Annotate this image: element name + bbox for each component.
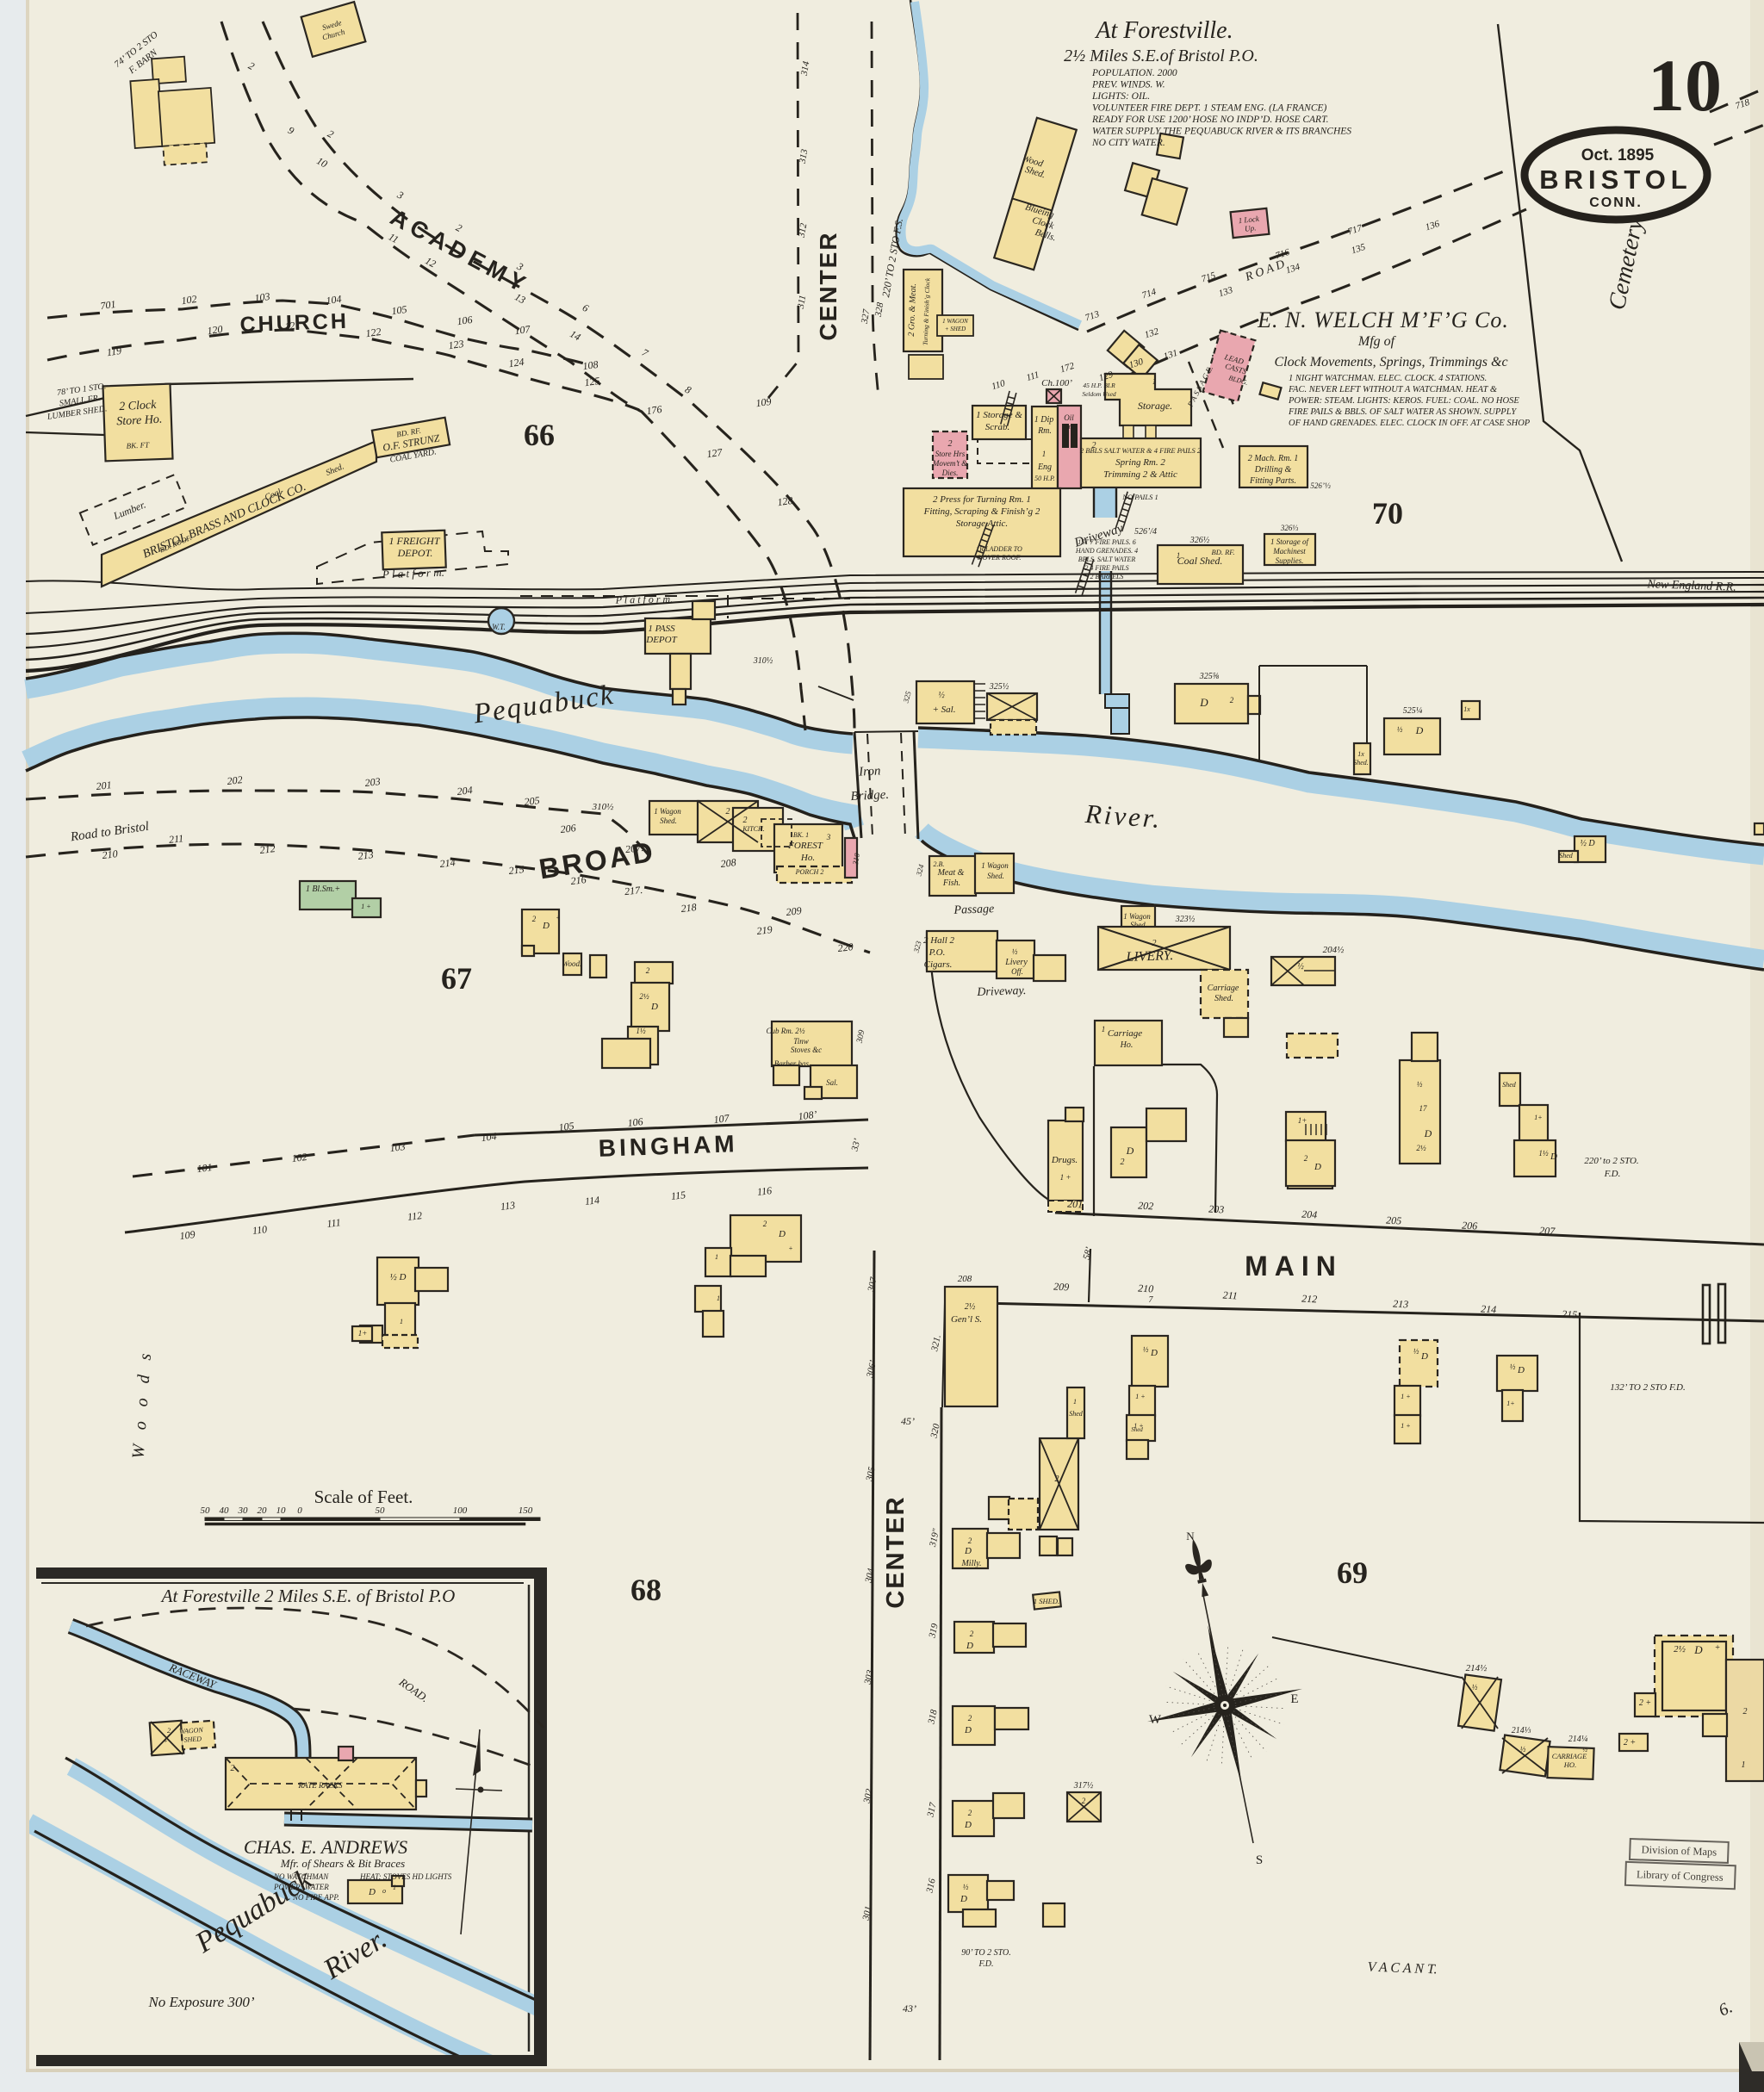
- svg-text:120: 120: [207, 323, 224, 337]
- svg-text:½: ½: [963, 1883, 969, 1891]
- svg-text:1+: 1+: [1506, 1400, 1514, 1407]
- svg-text:2: 2: [646, 966, 650, 975]
- svg-text:1½: 1½: [1538, 1149, 1549, 1158]
- svg-text:Iron: Iron: [858, 764, 881, 779]
- svg-text:P l a t f o r m.: P l a t f o r m.: [382, 566, 444, 581]
- svg-text:D: D: [1693, 1643, 1703, 1656]
- svg-text:1 +: 1 +: [1060, 1173, 1071, 1182]
- svg-text:121: 121: [284, 319, 301, 332]
- svg-text:214: 214: [439, 856, 456, 870]
- svg-text:OF HAND GRENADES. ELEC. CLO: OF HAND GRENADES. ELEC. CLOCK IN OFF. AT…: [1289, 419, 1531, 428]
- svg-text:POPULATION. 2000: POPULATION. 2000: [1091, 68, 1177, 78]
- svg-text:45’: 45’: [901, 1415, 915, 1427]
- svg-text:208: 208: [958, 1274, 972, 1284]
- svg-text:107: 107: [713, 1112, 731, 1126]
- svg-text:210: 210: [1138, 1282, 1154, 1295]
- svg-text:317½: 317½: [1073, 1781, 1094, 1791]
- svg-text:S: S: [1256, 1853, 1263, 1867]
- svg-text:1 +: 1 +: [361, 903, 370, 910]
- svg-text:CENTER: CENTER: [815, 231, 842, 340]
- svg-text:D: D: [964, 1820, 972, 1830]
- svg-text:67: 67: [441, 961, 472, 996]
- svg-text:+ SHED: + SHED: [945, 326, 966, 332]
- svg-text:1+: 1+: [1534, 1114, 1542, 1121]
- svg-text:Oil: Oil: [1064, 413, 1074, 422]
- svg-text:214½: 214½: [1466, 1663, 1488, 1673]
- svg-text:1: 1: [393, 1884, 396, 1891]
- svg-text:2 Gro. & Meat.: 2 Gro. & Meat.: [907, 283, 918, 337]
- svg-text:WATER SUPPLY THE PEQUABUC: WATER SUPPLY THE PEQUABUCK RIVER & ITS B…: [1092, 127, 1351, 137]
- svg-text:½ D: ½ D: [390, 1272, 407, 1282]
- svg-text:1 PASS: 1 PASS: [648, 624, 675, 634]
- svg-text:2 BBLS SALT WATER & 4 FIRE PAI: 2 BBLS SALT WATER & 4 FIRE PAILS 2: [1080, 446, 1202, 455]
- svg-text:2: 2: [1230, 696, 1234, 705]
- svg-text:219: 219: [756, 923, 773, 937]
- svg-text:0: 0: [297, 1505, 302, 1516]
- svg-text:2: 2: [970, 1630, 974, 1638]
- svg-text:114: 114: [584, 1194, 600, 1207]
- svg-text:½: ½: [1297, 962, 1304, 972]
- svg-text:202: 202: [227, 773, 243, 787]
- svg-text:1 Storage &: 1 Storage &: [976, 410, 1022, 420]
- svg-text:220’ to 2 STO.: 220’ to 2 STO.: [1584, 1156, 1638, 1166]
- svg-text:2: 2: [968, 1714, 972, 1723]
- svg-text:1: 1: [1152, 377, 1157, 386]
- svg-text:2: 2: [1121, 1158, 1125, 1167]
- svg-text:108: 108: [582, 358, 599, 372]
- svg-text:213: 213: [1393, 1298, 1409, 1311]
- svg-text:Shed.: Shed.: [660, 816, 677, 825]
- svg-text:W: W: [1149, 1713, 1162, 1727]
- svg-text:201: 201: [96, 779, 112, 792]
- svg-text:Coal Shed.: Coal Shed.: [1177, 555, 1223, 567]
- svg-text:Off.: Off.: [1011, 967, 1023, 976]
- svg-text:Driveway.: Driveway.: [976, 984, 1027, 999]
- svg-text:1 NIGHT WATCHMAN. ELEC.: 1 NIGHT WATCHMAN. ELEC. CLOCK. 4 STATION…: [1289, 374, 1487, 383]
- svg-text:1: 1: [1073, 1398, 1077, 1406]
- svg-text:D: D: [1415, 724, 1424, 736]
- svg-text:1 Bl.Sm.+: 1 Bl.Sm.+: [306, 885, 340, 894]
- svg-text:128: 128: [777, 494, 794, 508]
- svg-text:2 Clock: 2 Clock: [119, 399, 158, 413]
- svg-text:½: ½: [1143, 1345, 1149, 1354]
- svg-text:108’: 108’: [798, 1108, 818, 1123]
- svg-text:+ Sal.: + Sal.: [933, 705, 956, 715]
- svg-text:P l a t f o r m.: P l a t f o r m.: [615, 593, 674, 605]
- svg-text:2 Mach. Rm. 1: 2 Mach. Rm. 1: [1248, 454, 1299, 463]
- svg-text:127: 127: [706, 446, 724, 461]
- svg-text:103: 103: [254, 290, 271, 304]
- svg-text:2: 2: [1743, 1707, 1748, 1716]
- svg-text:2 Press for Turning Rm. 1: 2 Press for Turning Rm. 1: [933, 494, 1031, 505]
- svg-text:Store Ho.: Store Ho.: [116, 413, 163, 429]
- svg-text:+: +: [556, 914, 560, 922]
- svg-text:E: E: [1290, 1692, 1298, 1706]
- svg-text:116: 116: [756, 1184, 773, 1198]
- svg-text:V A C A N: V A C A N T.: [1367, 1960, 1437, 1977]
- svg-text:2: 2: [1304, 1154, 1308, 1163]
- svg-text:2: 2: [948, 439, 953, 449]
- svg-text:103: 103: [389, 1140, 407, 1154]
- svg-text:Sal.: Sal.: [826, 1078, 838, 1087]
- svg-text:105: 105: [391, 303, 408, 317]
- svg-text:2.B.: 2.B.: [934, 860, 945, 868]
- svg-text:Scrab.: Scrab.: [985, 422, 1009, 432]
- svg-text:213: 213: [357, 848, 374, 862]
- svg-text:Seldom Used: Seldom Used: [1082, 390, 1116, 398]
- svg-text:70: 70: [1372, 496, 1403, 531]
- svg-text:LIVERY.: LIVERY.: [1125, 948, 1173, 965]
- svg-text:NO CITY WATER.: NO CITY WATER.: [1091, 138, 1165, 148]
- svg-text:FIRE PAILS & BBLS. OF SALT WA: FIRE PAILS & BBLS. OF SALT WATER AS SHOW…: [1288, 407, 1517, 417]
- svg-text:325⅝: 325⅝: [1199, 672, 1220, 681]
- svg-text:NO PAILS 1: NO PAILS 1: [1121, 493, 1158, 501]
- svg-text:At Forestville.: At Forestville.: [1094, 17, 1233, 44]
- svg-text:201: 201: [1067, 1198, 1084, 1211]
- svg-text:107: 107: [514, 323, 532, 338]
- svg-text:Cigars.: Cigars.: [924, 959, 953, 970]
- svg-text:D: D: [964, 1546, 972, 1556]
- svg-text:D: D: [1314, 1162, 1321, 1172]
- svg-text:526’⅓: 526’⅓: [1310, 481, 1330, 490]
- svg-text:1 WAGON: 1 WAGON: [942, 318, 968, 325]
- svg-text:+: +: [788, 1245, 792, 1252]
- svg-text:1R LADDER TO: 1R LADDER TO: [976, 545, 1022, 553]
- svg-text:No Exposure 300’: No Exposure 300’: [147, 1994, 254, 2010]
- svg-text:1 +: 1 +: [1401, 1393, 1410, 1400]
- svg-text:43’: 43’: [903, 2002, 916, 2014]
- svg-text:105: 105: [558, 1120, 575, 1133]
- svg-text:Trimming 2 & Attic: Trimming 2 & Attic: [1103, 469, 1177, 480]
- svg-text:203: 203: [1208, 1203, 1225, 1216]
- svg-text:KITCH.: KITCH.: [742, 825, 765, 833]
- svg-text:F.D.: F.D.: [978, 1959, 993, 1969]
- svg-text:RATE RACKS: RATE RACKS: [298, 1781, 343, 1790]
- svg-text:30: 30: [238, 1505, 249, 1516]
- svg-text:D: D: [1550, 1152, 1557, 1162]
- svg-text:Ho.: Ho.: [1120, 1040, 1134, 1050]
- svg-text:VOLUNTEER FIRE DEPT.: VOLUNTEER FIRE DEPT. 1 STEAM ENG. (LA FR…: [1092, 103, 1327, 114]
- svg-text:208: 208: [720, 856, 736, 870]
- svg-text:Rm.: Rm.: [1064, 423, 1076, 431]
- svg-text:2½: 2½: [1674, 1644, 1686, 1654]
- svg-text:8 OVER ROOF.: 8 OVER ROOF.: [978, 554, 1022, 562]
- svg-text:BK. FT: BK. FT: [126, 440, 150, 450]
- svg-text:½: ½: [938, 691, 945, 700]
- svg-text:132’ TO 2 STO F.D.: 132’ TO 2 STO F.D.: [1610, 1382, 1685, 1393]
- svg-text:2½: 2½: [1416, 1144, 1426, 1152]
- svg-text:BINGHAM: BINGHAM: [598, 1130, 738, 1162]
- svg-text:½: ½: [1413, 1347, 1419, 1356]
- svg-text:½: ½: [1012, 947, 1018, 956]
- svg-text:323½: 323½: [1175, 915, 1196, 924]
- svg-text:2: 2: [763, 1220, 767, 1228]
- svg-text:1 +: 1 +: [1135, 1393, 1145, 1400]
- svg-text:210: 210: [102, 847, 118, 861]
- svg-text:2: 2: [726, 807, 730, 816]
- svg-text:104: 104: [481, 1130, 498, 1144]
- svg-text:2: 2: [968, 1809, 972, 1817]
- svg-text:203: 203: [364, 775, 381, 789]
- svg-text:D: D: [964, 1725, 972, 1735]
- svg-text:N: N: [1186, 1530, 1195, 1543]
- svg-text:2: 2: [1152, 939, 1157, 948]
- svg-text:F.D.: F.D.: [1604, 1169, 1621, 1179]
- svg-text:50: 50: [376, 1505, 386, 1516]
- svg-text:325½: 325½: [989, 682, 1009, 692]
- svg-text:D: D: [960, 1894, 967, 1904]
- svg-text:220: 220: [837, 940, 854, 954]
- svg-text:Meat &: Meat &: [937, 868, 965, 878]
- svg-text:DEPOT.: DEPOT.: [397, 547, 433, 559]
- svg-text:Storage.: Storage.: [1138, 400, 1172, 412]
- svg-text:Bridge.: Bridge.: [850, 788, 889, 804]
- svg-text:2½: 2½: [965, 1302, 976, 1312]
- svg-text:FAC. NEVER LEFT WITHOUT A WATC: FAC. NEVER LEFT WITHOUT A WATCHMAN. HEAT…: [1288, 385, 1498, 394]
- svg-text:124: 124: [508, 356, 525, 369]
- svg-text:326⅓: 326⅓: [1280, 524, 1299, 532]
- svg-text:2: 2: [1055, 1474, 1059, 1484]
- svg-text:POWER: STEAM. LIGHTS: KERO: POWER: STEAM. LIGHTS: KEROS. FUEL: COAL.…: [1288, 396, 1519, 406]
- svg-text:212: 212: [259, 842, 276, 856]
- svg-text:110: 110: [252, 1223, 268, 1237]
- svg-text:Shed.: Shed.: [1353, 759, 1369, 767]
- svg-text:W.T.: W.T.: [492, 623, 506, 631]
- svg-text:2: 2: [968, 1536, 972, 1545]
- svg-text:1 Wagon: 1 Wagon: [654, 807, 681, 816]
- svg-text:1+: 1+: [1298, 1116, 1307, 1125]
- svg-text:D: D: [368, 1887, 376, 1897]
- svg-text:Eng: Eng: [1037, 462, 1052, 472]
- svg-text:Tinw: Tinw: [793, 1037, 809, 1046]
- svg-text:1 Wagon: 1 Wagon: [981, 861, 1009, 870]
- svg-text:216: 216: [570, 873, 587, 887]
- svg-text:D: D: [1424, 1127, 1432, 1139]
- svg-text:+: +: [163, 1737, 167, 1745]
- svg-text:1x: 1x: [1357, 750, 1364, 758]
- svg-text:69: 69: [1337, 1555, 1368, 1590]
- svg-text:Movem’t &: Movem’t &: [932, 459, 967, 468]
- svg-text:D: D: [542, 921, 550, 931]
- svg-text:3: 3: [826, 833, 831, 841]
- svg-text:½ D: ½ D: [1580, 839, 1595, 848]
- svg-text:PORCH 2: PORCH 2: [795, 868, 824, 876]
- svg-text:218: 218: [680, 901, 697, 915]
- svg-text:2½ Miles S.E.of Bristol P.O.: 2½ Miles S.E.of Bristol P.O.: [1064, 47, 1258, 65]
- svg-text:CHAS. E. ANDREWS: CHAS. E. ANDREWS: [244, 1836, 407, 1858]
- svg-text:D: D: [1199, 696, 1208, 709]
- svg-text:½: ½: [1510, 1363, 1516, 1371]
- svg-text:Storage Attic.: Storage Attic.: [956, 518, 1008, 529]
- svg-text:101: 101: [196, 1161, 214, 1175]
- svg-text:207.: 207.: [624, 841, 643, 855]
- svg-text:206: 206: [1462, 1220, 1478, 1232]
- svg-text:2 BARRELS: 2 BARRELS: [1090, 573, 1124, 580]
- svg-text:1 FREIGHT: 1 FREIGHT: [389, 535, 441, 547]
- svg-text:Ho.: Ho.: [800, 853, 815, 863]
- svg-text:17: 17: [1419, 1104, 1428, 1113]
- svg-text:217.: 217.: [624, 884, 643, 897]
- svg-text:Oct. 1895: Oct. 1895: [1581, 146, 1655, 165]
- svg-text:68: 68: [630, 1573, 661, 1607]
- svg-text:525¼: 525¼: [1403, 706, 1423, 716]
- svg-text:109: 109: [179, 1228, 196, 1242]
- svg-text:106: 106: [457, 313, 474, 327]
- svg-text:1 SHED.: 1 SHED.: [1034, 1597, 1059, 1605]
- svg-text:214: 214: [1481, 1303, 1497, 1316]
- svg-text:FOREST: FOREST: [787, 841, 823, 851]
- svg-text:River.: River.: [1084, 798, 1164, 834]
- svg-text:Barber bas.: Barber bas.: [774, 1059, 811, 1068]
- svg-text:202: 202: [1138, 1200, 1154, 1213]
- svg-text:214¼: 214¼: [1568, 1735, 1588, 1744]
- svg-text:206: 206: [560, 822, 576, 835]
- svg-text:HAND GRENADES. 4: HAND GRENADES. 4: [1075, 547, 1138, 555]
- svg-text:1: 1: [717, 1294, 720, 1302]
- svg-text:112: 112: [407, 1209, 423, 1223]
- svg-text:MAIN: MAIN: [1245, 1251, 1343, 1282]
- svg-text:Fitting Parts.: Fitting Parts.: [1249, 476, 1296, 486]
- svg-text:1 Dip: 1 Dip: [1034, 415, 1054, 425]
- svg-text:1: 1: [1742, 1760, 1746, 1770]
- svg-text:D: D: [650, 1002, 658, 1012]
- svg-text:Carriage: Carriage: [1108, 1028, 1142, 1039]
- svg-text:204: 204: [1301, 1208, 1318, 1221]
- svg-text:D: D: [778, 1229, 786, 1239]
- svg-text:HEAT: STOVES HD LIGHTS: HEAT: STOVES HD LIGHTS: [359, 1872, 452, 1881]
- svg-text:115: 115: [670, 1189, 686, 1202]
- svg-text:BD. RF.: BD. RF.: [1212, 548, 1235, 556]
- svg-text:½: ½: [1397, 725, 1403, 734]
- svg-text:1+: 1+: [358, 1329, 368, 1338]
- svg-text:E. N. WELCH M’F’G Co.: E. N. WELCH M’F’G Co.: [1257, 307, 1509, 332]
- svg-text:209: 209: [1053, 1281, 1070, 1294]
- svg-text:2½: 2½: [639, 992, 649, 1001]
- svg-text:Spring Rm. 2: Spring Rm. 2: [1115, 457, 1165, 468]
- svg-text:310½: 310½: [592, 802, 614, 812]
- svg-text:D: D: [1517, 1365, 1525, 1375]
- svg-text:207: 207: [1539, 1225, 1556, 1238]
- svg-text:Shed: Shed: [1069, 1410, 1084, 1418]
- svg-text:Carriage: Carriage: [1208, 984, 1239, 993]
- svg-text:At Forestville 2 Miles S.E.: At Forestville 2 Miles S.E. of Bristol P…: [160, 1586, 456, 1606]
- svg-text:Rm.: Rm.: [1037, 426, 1052, 436]
- svg-text:40: 40: [220, 1505, 230, 1516]
- svg-text:1: 1: [1177, 551, 1181, 560]
- svg-text:SHED: SHED: [183, 1735, 202, 1743]
- svg-text:2 +: 2 +: [1624, 1738, 1636, 1747]
- svg-text:+: +: [1715, 1643, 1721, 1653]
- svg-text:CONN.: CONN.: [1589, 196, 1643, 210]
- svg-text:20: 20: [258, 1505, 268, 1516]
- svg-text:Shed.: Shed.: [987, 872, 1004, 880]
- svg-text:209: 209: [786, 904, 802, 918]
- svg-text:2: 2: [167, 1727, 171, 1735]
- svg-text:Gen’l S.: Gen’l S.: [951, 1314, 982, 1325]
- svg-text:50: 50: [201, 1505, 211, 1516]
- svg-text:2 +: 2 +: [1639, 1698, 1651, 1708]
- svg-text:212: 212: [1301, 1293, 1318, 1306]
- svg-text:125: 125: [584, 375, 601, 388]
- svg-text:½: ½: [1582, 1746, 1587, 1754]
- svg-text:D: D: [1420, 1351, 1428, 1362]
- svg-text:211: 211: [1222, 1289, 1238, 1302]
- svg-text:½: ½: [1417, 1080, 1423, 1089]
- svg-text:1 Storage of: 1 Storage of: [1270, 537, 1309, 546]
- svg-text:104: 104: [326, 293, 343, 307]
- svg-text:50 H.P.: 50 H.P.: [1034, 475, 1055, 482]
- svg-text:Up.: Up.: [1245, 223, 1257, 233]
- svg-text:1x: 1x: [1463, 705, 1470, 713]
- svg-text:Shed.: Shed.: [1130, 921, 1147, 929]
- svg-text:2: 2: [231, 1764, 235, 1773]
- svg-text:½: ½: [1520, 1745, 1526, 1754]
- svg-text:CENTER: CENTER: [882, 1495, 910, 1608]
- svg-text:BK. 1: BK. 1: [793, 831, 809, 839]
- svg-text:1: 1: [400, 1318, 403, 1325]
- svg-text:BBLS. SALT WATER: BBLS. SALT WATER: [1078, 556, 1136, 563]
- svg-text:Ch.100’: Ch.100’: [1041, 378, 1072, 388]
- svg-text:310½: 310½: [753, 656, 773, 666]
- svg-text:204: 204: [457, 784, 473, 798]
- svg-text:102: 102: [181, 293, 198, 307]
- svg-text:10: 10: [1648, 44, 1722, 127]
- svg-text:D: D: [1150, 1348, 1158, 1358]
- svg-text:Cub Rm. 2½: Cub Rm. 2½: [767, 1027, 805, 1035]
- svg-text:122: 122: [365, 326, 382, 339]
- svg-text:PREV. WINDS. W.: PREV. WINDS. W.: [1091, 80, 1165, 90]
- svg-text:90’ TO 2 STO.: 90’ TO 2 STO.: [961, 1948, 1010, 1958]
- svg-text:10: 10: [276, 1505, 287, 1516]
- svg-text:123: 123: [448, 338, 465, 351]
- svg-text:100: 100: [453, 1505, 468, 1516]
- svg-text:150: 150: [519, 1505, 533, 1516]
- svg-text:Clock Movements, Springs, Trim: Clock Movements, Springs, Trimmings &c: [1274, 355, 1507, 369]
- svg-text:109: 109: [755, 395, 773, 409]
- svg-text:D: D: [966, 1641, 973, 1651]
- svg-text:READY FOR USE 1200’ HOSE N: READY FOR USE 1200’ HOSE NO INDP’D. HOSE…: [1091, 115, 1328, 125]
- svg-text:Machinest: Machinest: [1272, 547, 1306, 556]
- svg-text:1: 1: [1102, 1025, 1106, 1034]
- svg-text:½: ½: [1472, 1683, 1478, 1692]
- svg-text:2: 2: [532, 915, 537, 923]
- svg-text:Scale of Feet.: Scale of Feet.: [314, 1487, 413, 1507]
- svg-text:Passage: Passage: [953, 903, 994, 917]
- svg-text:2 Hall 2: 2 Hall 2: [923, 935, 955, 946]
- svg-text:113: 113: [500, 1199, 516, 1213]
- svg-text:1: 1: [1042, 450, 1047, 458]
- svg-text:DEPOT: DEPOT: [645, 635, 677, 645]
- svg-text:Stoves &c: Stoves &c: [791, 1046, 822, 1054]
- svg-text:45 H.P. BLR: 45 H.P. BLR: [1083, 382, 1115, 389]
- svg-text:2: 2: [743, 816, 748, 825]
- svg-text:2: 2: [1082, 1797, 1086, 1805]
- svg-text:Supplies.: Supplies.: [1276, 556, 1304, 565]
- svg-text:Milly.: Milly.: [960, 1559, 981, 1568]
- svg-text:106: 106: [627, 1115, 644, 1129]
- svg-text:Livery: Livery: [1004, 958, 1028, 967]
- svg-text:Store Hrs: Store Hrs: [935, 450, 966, 458]
- svg-text:Fitting, Scraping & Finish’g: Fitting, Scraping & Finish’g 2: [923, 506, 1040, 517]
- svg-text:1 Wagon: 1 Wagon: [1123, 912, 1151, 921]
- svg-text:176: 176: [646, 403, 663, 417]
- svg-text:Shed: Shed: [1131, 1426, 1143, 1433]
- svg-text:214⅓: 214⅓: [1512, 1726, 1531, 1735]
- svg-text:o: o: [382, 1887, 386, 1895]
- svg-text:BRISTOL: BRISTOL: [1539, 165, 1693, 195]
- svg-text:P.O.: P.O.: [929, 947, 946, 958]
- svg-text:Shed.: Shed.: [1214, 994, 1233, 1003]
